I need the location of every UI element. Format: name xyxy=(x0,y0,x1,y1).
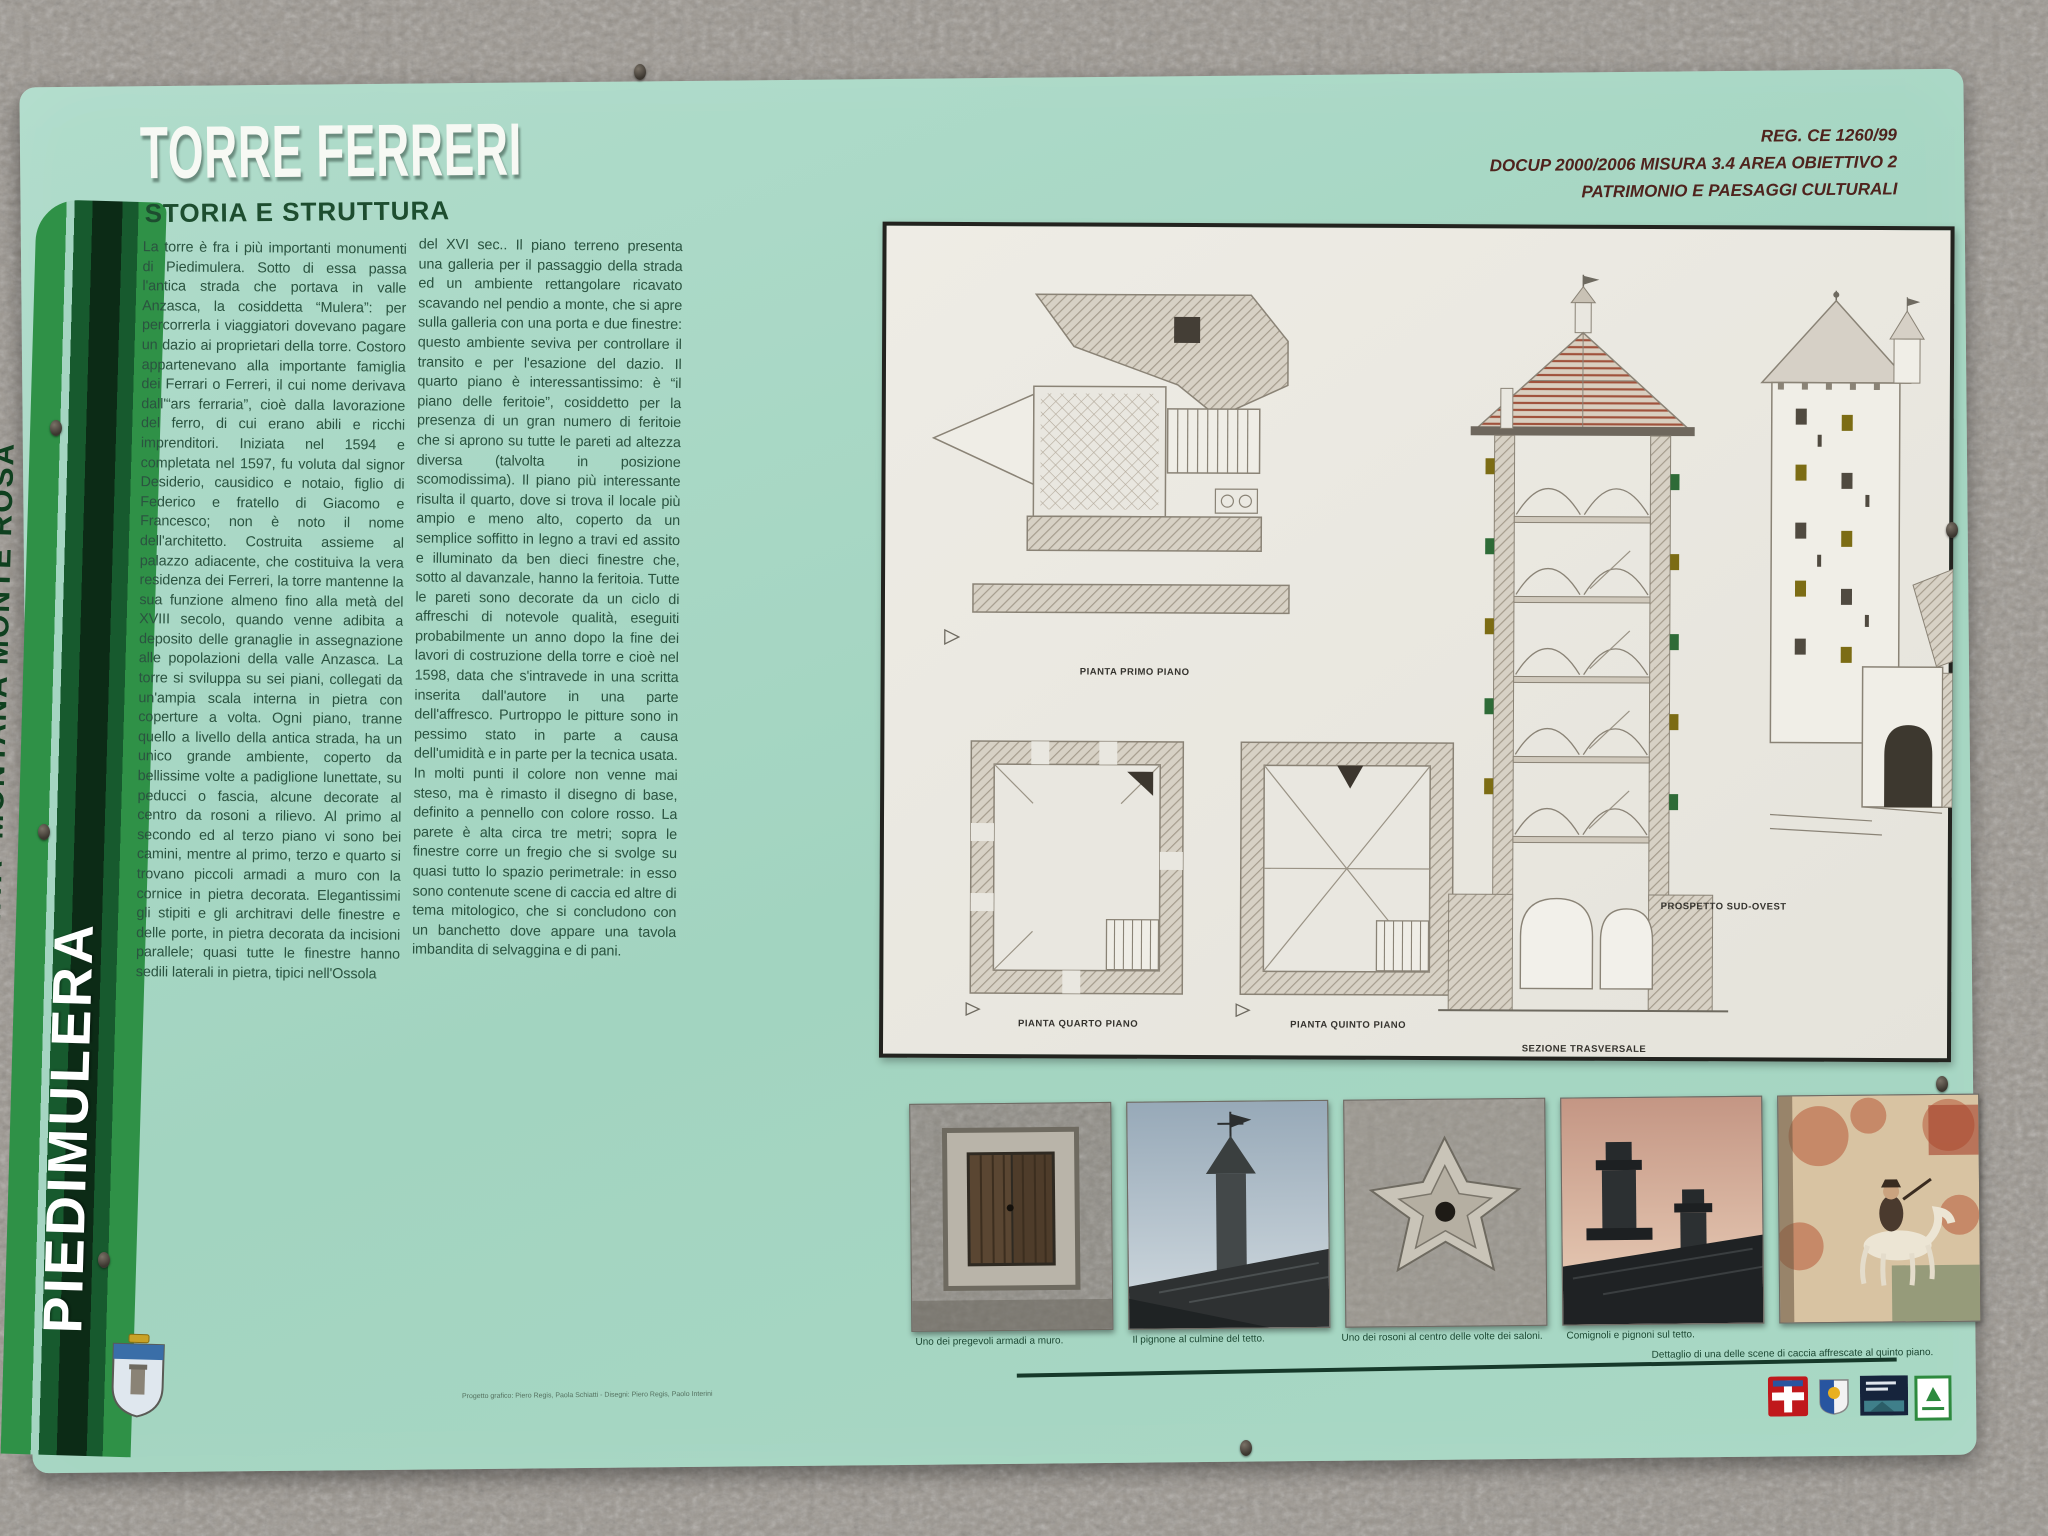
funding-line-2: DOCUP 2000/2006 MISURA 3.4 AREA OBIETTIV… xyxy=(1490,148,1898,179)
photo-fresco xyxy=(1777,1094,1981,1324)
photo-cupboard xyxy=(909,1102,1113,1332)
funding-line-3: PATRIMONIO E PAESAGGI CULTURALI xyxy=(1490,175,1898,206)
screw xyxy=(634,64,646,80)
caption-pinnacle: Il pignone al culmine del tetto. xyxy=(1132,1333,1362,1346)
label-pianta-primo-piano: PIANTA PRIMO PIANO xyxy=(1005,666,1265,678)
elevation-drawing xyxy=(1742,284,1955,910)
screw xyxy=(1946,522,1958,538)
photo-of-information-sign: { "panel": { "title": "TORRE FERRERI", "… xyxy=(0,0,2048,1536)
bottom-divider-line xyxy=(1017,1358,1897,1378)
page-subtitle: STORIA E STRUTTURA xyxy=(144,195,450,229)
credits-line: Progetto grafico: Piero Regis, Paola Sch… xyxy=(462,1389,882,1400)
funding-program-text: REG. CE 1260/99 DOCUP 2000/2006 MISURA 3… xyxy=(1489,121,1897,206)
logo-green-outline xyxy=(1914,1375,1952,1421)
sign-panel: COMUNITA' MONTANA MONTE ROSA PIEDIMULERA… xyxy=(19,69,1976,1474)
label-prospetto-sud-ovest: PROSPETTO SUD-OVEST xyxy=(1604,901,1844,913)
body-text-column-2: del XVI sec.. Il piano terreno presenta … xyxy=(411,236,683,1054)
logo-piedmont-region xyxy=(1768,1376,1808,1416)
screw xyxy=(98,1252,110,1268)
body-text-column-1: La torre è fra i più importanti monument… xyxy=(135,238,407,1056)
photo-chimneys xyxy=(1560,1096,1764,1326)
screw xyxy=(50,420,62,436)
floor-plan-first xyxy=(915,286,1317,658)
screw xyxy=(1936,1076,1948,1092)
page-title: TORRE FERRERI xyxy=(140,107,523,196)
municipal-coat-of-arms xyxy=(106,1332,171,1427)
screw xyxy=(38,824,50,840)
label-sezione-trasversale: SEZIONE TRASVERSALE xyxy=(1428,1043,1740,1055)
logo-community-photo xyxy=(1860,1375,1908,1415)
photo-rosette xyxy=(1343,1098,1547,1328)
screw xyxy=(1240,1440,1252,1456)
funding-line-1: REG. CE 1260/99 xyxy=(1489,121,1897,152)
caption-cupboard: Uno dei pregevoli armadi a muro. xyxy=(915,1335,1145,1348)
page-title-wrap: TORRE FERRERI xyxy=(140,104,757,195)
floor-plan-fourth xyxy=(958,731,1199,1017)
cross-section-drawing xyxy=(1428,268,1743,1029)
logo-crest xyxy=(1814,1376,1854,1416)
caption-chimneys: Comignoli e pignoni sul tetto. xyxy=(1566,1328,1796,1341)
caption-rosette: Uno dei rosoni al centro delle volte dei… xyxy=(1341,1331,1571,1344)
photo-pinnacle xyxy=(1126,1100,1330,1330)
label-pianta-quarto-piano: PIANTA QUARTO PIANO xyxy=(958,1018,1198,1030)
partner-logos xyxy=(1768,1375,1952,1423)
architectural-drawings-panel: PIANTA PRIMO PIANO PIANTA QUART xyxy=(879,222,1955,1063)
